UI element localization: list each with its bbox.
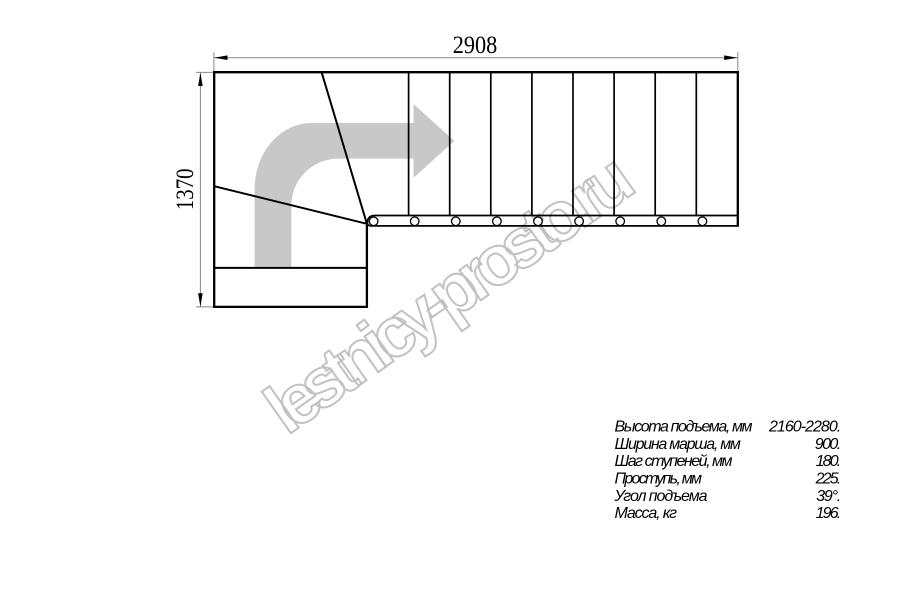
svg-text:Высота подъема, мм: Высота подъема, мм [615,419,753,436]
svg-text:Масса, кг: Масса, кг [615,505,678,522]
svg-text:225.: 225. [815,471,842,488]
svg-text:Ширина марша, мм: Ширина марша, мм [615,436,741,453]
svg-text:Шаг ступеней, мм: Шаг ступеней, мм [615,453,733,470]
svg-text:Угол подъема: Угол подъема [614,488,708,505]
svg-text:2908: 2908 [453,30,498,59]
svg-text:39°.: 39°. [816,488,841,505]
svg-text:900.: 900. [815,436,841,453]
svg-text:lestnicy-prosto.ru: lestnicy-prosto.ru [251,140,645,448]
svg-text:1370: 1370 [170,168,199,210]
svg-text:2160-2280.: 2160-2280. [768,419,841,436]
svg-text:180.: 180. [816,453,842,470]
svg-text:196.: 196. [816,505,842,522]
svg-text:Проступь, мм: Проступь, мм [615,471,703,488]
